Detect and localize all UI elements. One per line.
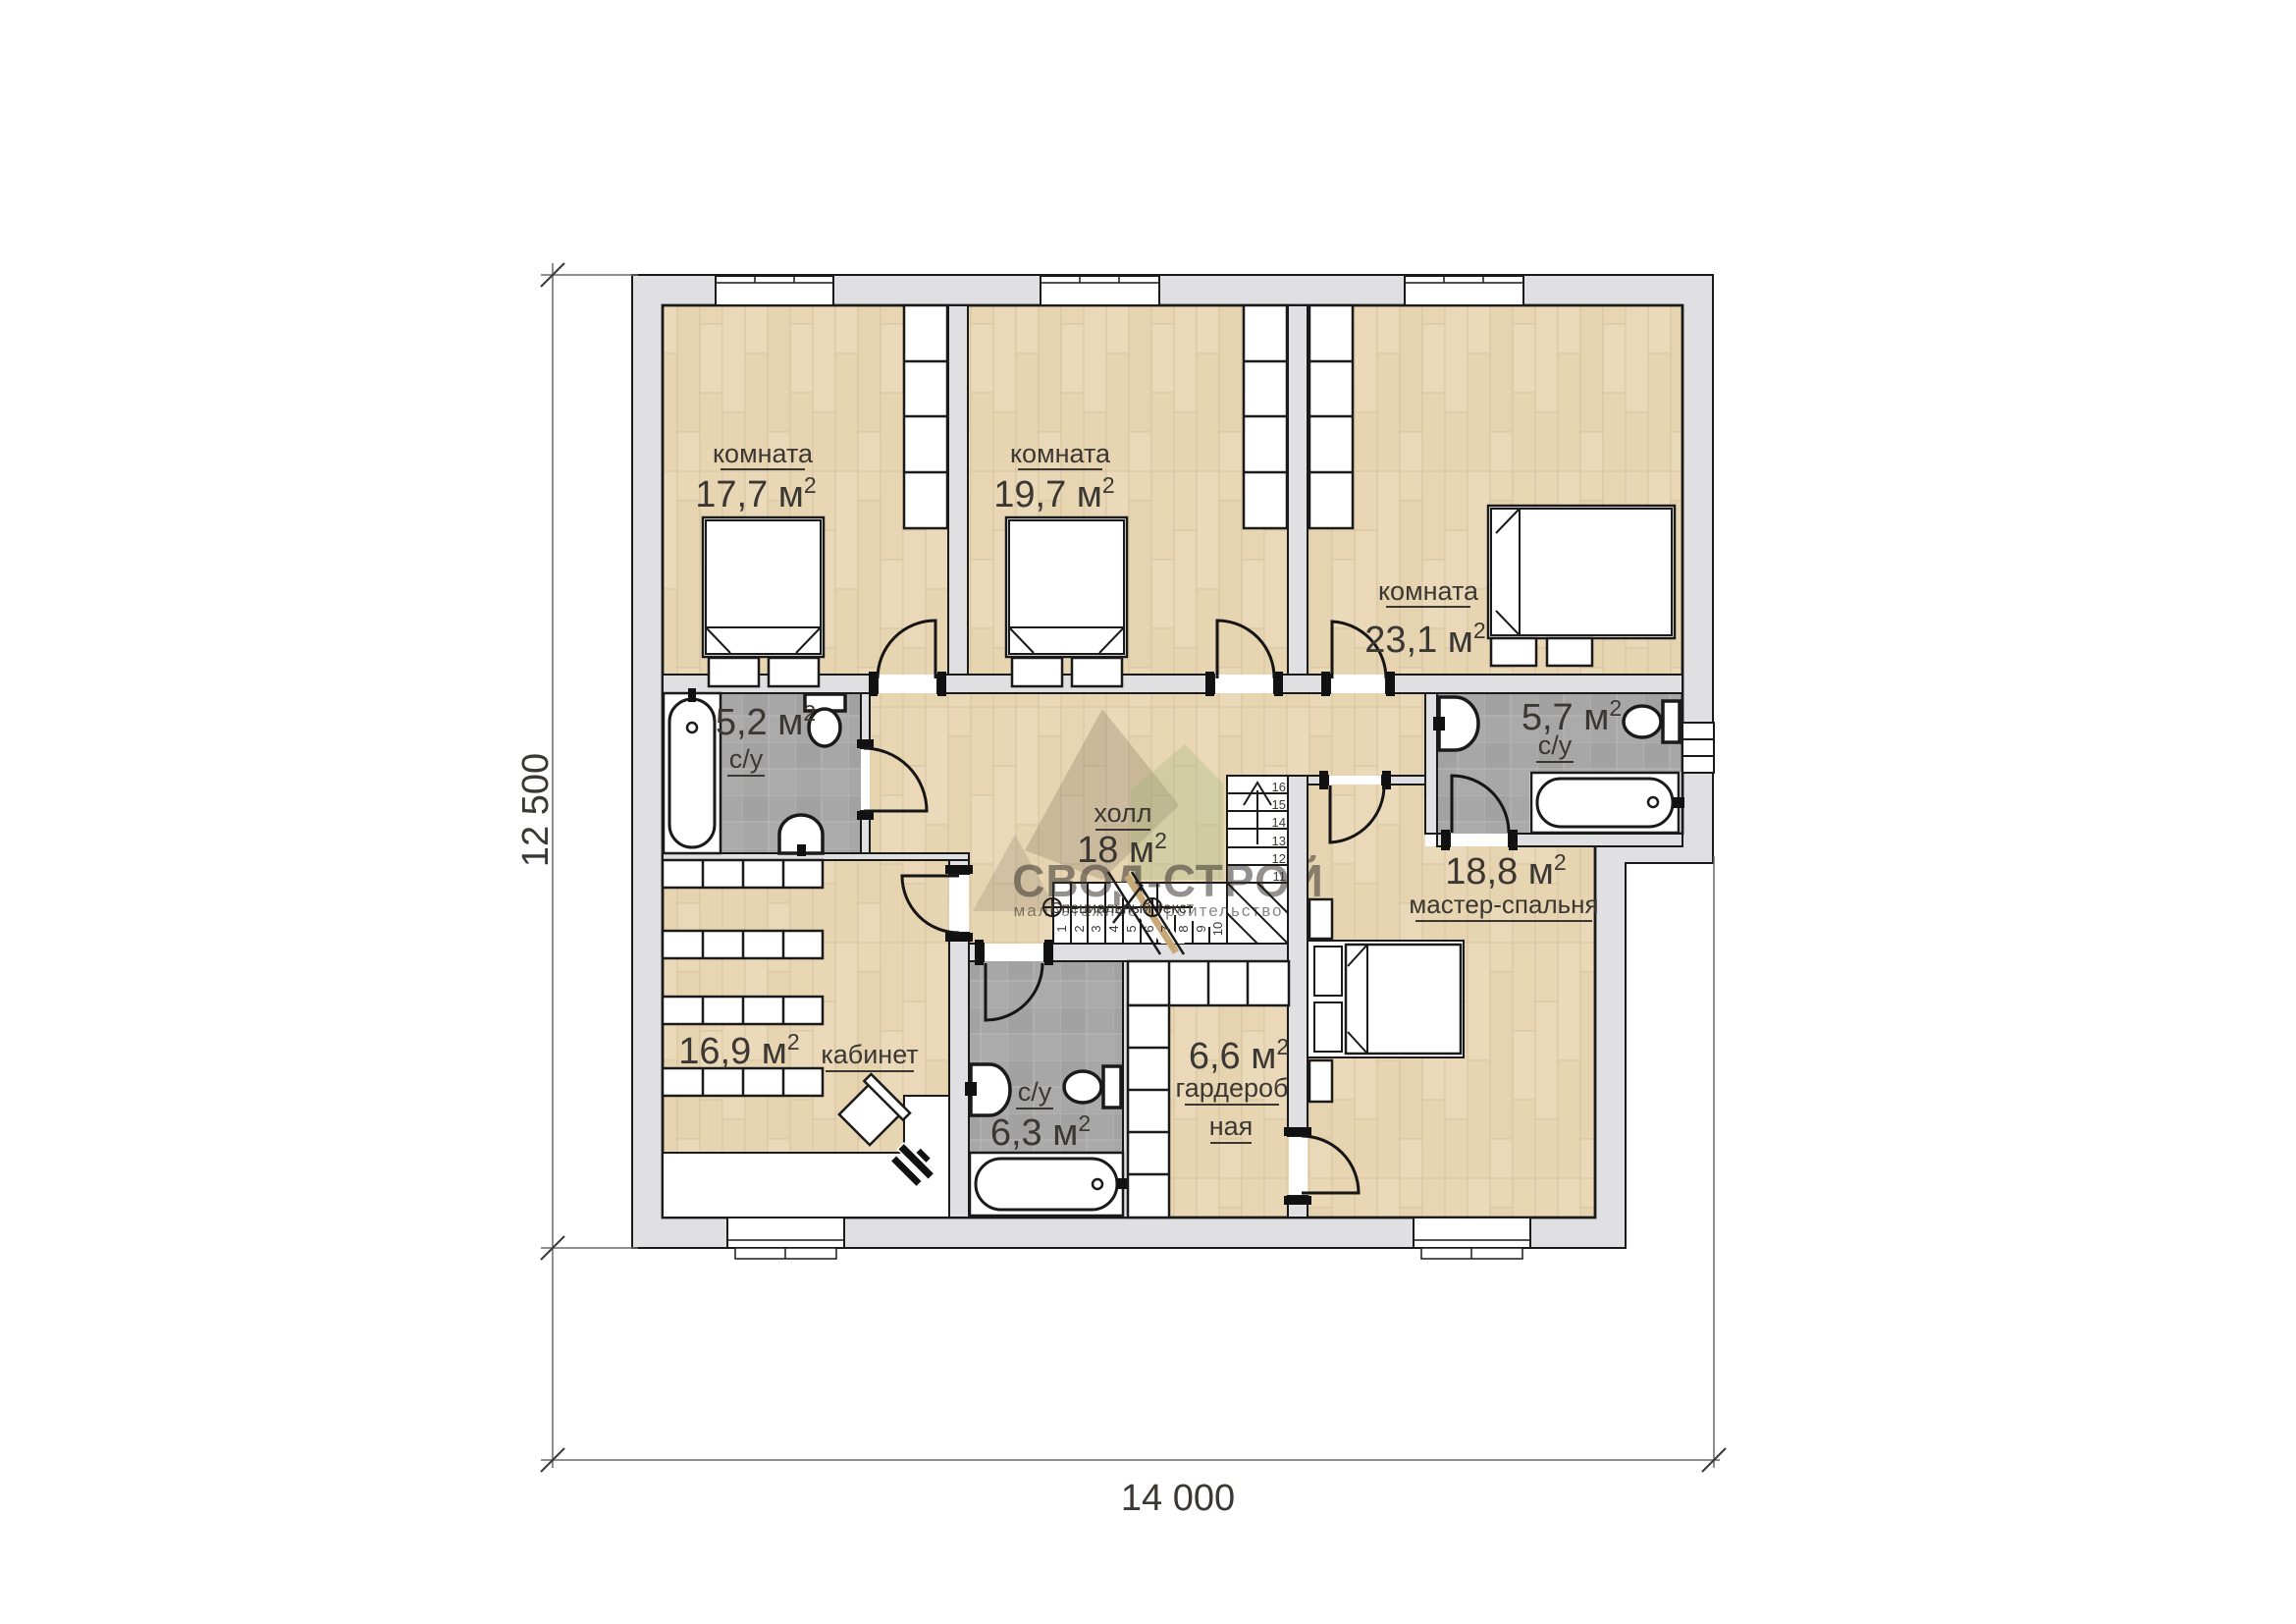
svg-text:16: 16 xyxy=(1272,780,1286,794)
svg-text:5: 5 xyxy=(1124,925,1139,932)
svg-text:6,3 м2: 6,3 м2 xyxy=(990,1110,1091,1154)
svg-text:9: 9 xyxy=(1194,925,1208,932)
svg-text:13: 13 xyxy=(1272,834,1286,848)
svg-text:7: 7 xyxy=(1158,925,1173,932)
svg-text:мастер-спальня: мастер-спальня xyxy=(1409,890,1598,919)
svg-text:16,9 м2: 16,9 м2 xyxy=(678,1029,799,1072)
svg-text:10: 10 xyxy=(1210,922,1225,936)
svg-text:с/у: с/у xyxy=(1538,731,1573,760)
svg-text:6: 6 xyxy=(1142,925,1156,932)
svg-text:18,8 м2: 18,8 м2 xyxy=(1445,849,1566,893)
svg-text:23,1 м2: 23,1 м2 xyxy=(1364,618,1485,661)
svg-text:19,7 м2: 19,7 м2 xyxy=(993,472,1114,515)
svg-text:с/у: с/у xyxy=(1018,1077,1052,1107)
svg-text:12 500: 12 500 xyxy=(515,753,557,867)
svg-text:холл: холл xyxy=(1094,798,1151,828)
svg-text:17,7 м2: 17,7 м2 xyxy=(695,472,816,515)
svg-text:5,2 м2: 5,2 м2 xyxy=(716,700,816,743)
svg-text:2: 2 xyxy=(1072,925,1087,932)
svg-text:Специальный текст: Специальный текст xyxy=(1050,900,1195,917)
svg-text:1: 1 xyxy=(1054,925,1069,932)
svg-text:комната: комната xyxy=(713,439,814,468)
svg-text:комната: комната xyxy=(1010,439,1111,468)
svg-text:с/у: с/у xyxy=(729,744,764,774)
svg-text:15: 15 xyxy=(1272,797,1286,812)
svg-text:кабинет: кабинет xyxy=(821,1040,918,1069)
svg-text:гардероб: гардероб xyxy=(1176,1073,1289,1103)
svg-text:комната: комната xyxy=(1378,576,1479,606)
svg-text:14 000: 14 000 xyxy=(1121,1478,1235,1519)
svg-text:14: 14 xyxy=(1272,815,1286,830)
svg-text:3: 3 xyxy=(1089,925,1103,932)
svg-text:ная: ная xyxy=(1209,1111,1254,1141)
svg-text:4: 4 xyxy=(1106,925,1121,932)
svg-text:11: 11 xyxy=(1273,869,1287,884)
svg-text:12: 12 xyxy=(1272,851,1286,866)
svg-text:18 м2: 18 м2 xyxy=(1077,828,1167,871)
svg-text:6,6 м2: 6,6 м2 xyxy=(1189,1034,1289,1077)
svg-text:8: 8 xyxy=(1176,925,1191,932)
